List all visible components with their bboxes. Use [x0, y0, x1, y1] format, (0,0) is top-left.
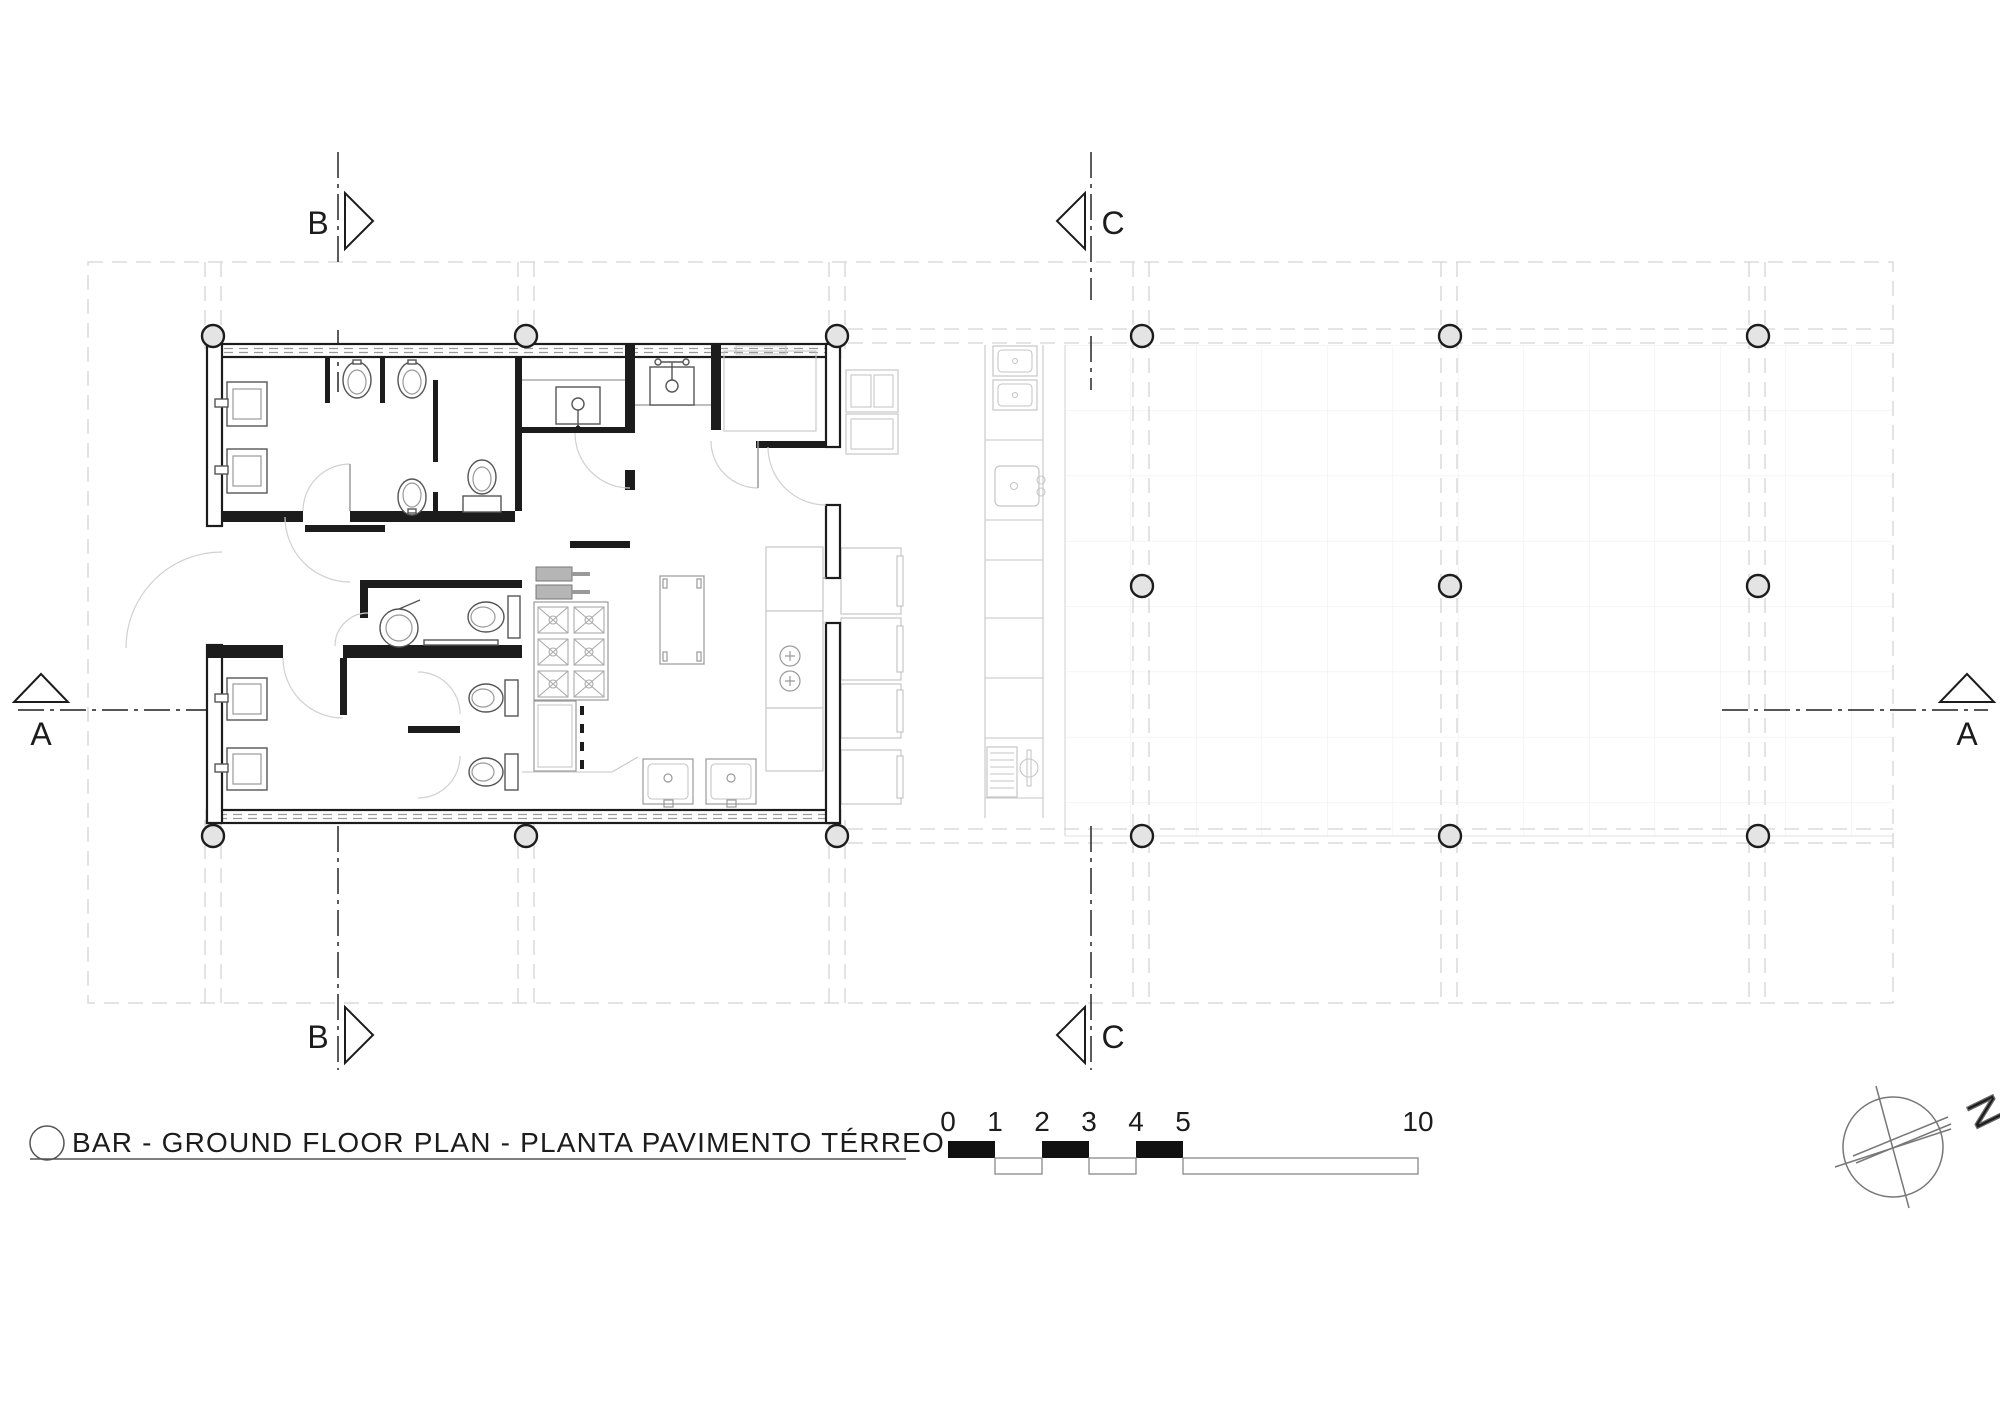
floor-plan-drawing: B C B C A A BAR - GROUND FLOOR PLAN - PL…	[0, 0, 2000, 1415]
under-counter-fridge	[534, 701, 584, 771]
west-wall-upper	[207, 344, 222, 526]
glass-washer	[987, 747, 1038, 797]
mop-sink	[635, 359, 711, 405]
bar-hand-sink	[995, 466, 1045, 506]
scale-tick-1: 1	[987, 1106, 1003, 1137]
section-label-a: A	[30, 716, 52, 752]
east-wall	[826, 344, 840, 447]
svg-text:A: A	[1956, 716, 1978, 752]
salamander-grill	[536, 567, 590, 599]
kitchen-equipment	[522, 547, 823, 807]
scale-tick-10: 10	[1402, 1106, 1433, 1137]
round-basin	[380, 600, 420, 647]
north-arrow-icon: N	[1835, 1086, 2000, 1208]
side-counter	[766, 547, 823, 771]
west-wall-lower	[207, 645, 222, 823]
scale-segment-white	[995, 1158, 1042, 1174]
scale-bar: 0 1 2 3 4 5 10	[940, 1106, 1433, 1174]
prep-table	[660, 576, 704, 664]
north-label: N	[1957, 1088, 2000, 1136]
accessible-toilet	[468, 596, 520, 638]
faded-furniture	[841, 345, 1045, 818]
svg-text:B: B	[307, 1019, 328, 1055]
scale-tick-3: 3	[1081, 1106, 1097, 1137]
toilet	[463, 460, 501, 512]
scale-tick-5: 5	[1175, 1106, 1191, 1137]
section-label-b: B	[307, 205, 328, 241]
section-marker-b-bottom: B	[307, 1007, 373, 1063]
section-marker-a-right: A	[1940, 674, 1994, 752]
title-block: BAR - GROUND FLOOR PLAN - PLANTA PAVIMEN…	[30, 1126, 945, 1160]
fridge	[846, 370, 898, 454]
gas-stove	[534, 602, 608, 700]
section-marker-b-top: B	[307, 193, 373, 249]
south-wall	[207, 810, 840, 823]
scale-tick-0: 0	[940, 1106, 956, 1137]
interior-walls	[207, 344, 826, 733]
scale-tick-4: 4	[1128, 1106, 1144, 1137]
svg-text:C: C	[1101, 1019, 1124, 1055]
section-label-c: C	[1101, 205, 1124, 241]
bar-sink	[993, 346, 1037, 410]
storage-shelf	[724, 346, 816, 431]
bar-counter	[985, 345, 1045, 818]
scale-tick-2: 2	[1034, 1106, 1050, 1137]
scale-segment-black	[948, 1141, 995, 1158]
floor-plan-sheet: B C B C A A BAR - GROUND FLOOR PLAN - PL…	[0, 0, 2000, 1415]
toilet	[469, 680, 518, 790]
grab-bar	[424, 640, 498, 645]
section-marker-a-left: A	[14, 674, 68, 752]
bench-seating	[841, 548, 903, 804]
drawing-title: BAR - GROUND FLOOR PLAN - PLANTA PAVIMEN…	[72, 1127, 945, 1158]
title-bullet-circle	[30, 1126, 64, 1160]
kitchen-sink	[643, 759, 756, 807]
counter-sink	[522, 380, 625, 431]
